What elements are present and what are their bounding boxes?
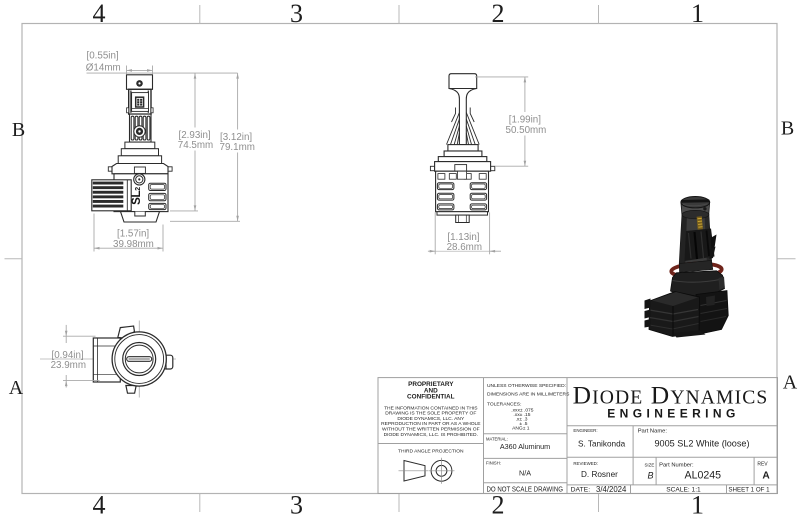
svg-text:74.5mm: 74.5mm [178,140,213,151]
svg-text:B: B [648,471,654,481]
svg-text:A: A [762,471,770,482]
svg-text:CONFIDENTIAL: CONFIDENTIAL [407,394,455,401]
svg-text:S. Tanikonda: S. Tanikonda [578,439,626,448]
svg-text:ENGINEERING: ENGINEERING [607,407,739,421]
svg-text:2: 2 [492,0,505,28]
svg-text:D. Rosner: D. Rosner [581,470,618,479]
svg-text:TOLERANCES:: TOLERANCES: [487,401,521,407]
svg-text:DIODE DYNAMICS, LLC. IS PROHIB: DIODE DYNAMICS, LLC. IS PROHIBITED. [384,432,478,438]
svg-text:ENGINEER:: ENGINEER: [573,428,597,433]
svg-text:FINISH:: FINISH: [486,461,501,466]
svg-text:1: 1 [691,491,704,518]
svg-text:79.1mm: 79.1mm [220,142,255,153]
svg-text:B: B [781,118,794,140]
svg-text:DO NOT SCALE DRAWING: DO NOT SCALE DRAWING [487,486,564,493]
svg-text:B: B [12,119,25,141]
svg-text:SCALE: 1:1: SCALE: 1:1 [666,487,701,494]
svg-text:REPRODUCTION IN PART OR AS A W: REPRODUCTION IN PART OR AS A WHOLE [381,421,481,427]
svg-text:3: 3 [290,491,303,518]
svg-text:MATERIAL:: MATERIAL: [486,436,508,441]
svg-text:A360 Aluminum: A360 Aluminum [500,442,550,451]
svg-text:Ø14mm: Ø14mm [86,63,121,74]
svg-text:REVIEWED:: REVIEWED: [573,461,598,466]
svg-text:9005 SL2 White (loose): 9005 SL2 White (loose) [655,438,750,449]
svg-text:REV: REV [757,461,768,467]
svg-text:AL0245: AL0245 [685,470,722,482]
svg-text:[0.55in]: [0.55in] [87,50,119,61]
svg-text:DRAWING IS THE SOLE PROPERTY O: DRAWING IS THE SOLE PROPERTY OF [385,411,476,417]
svg-text:1: 1 [691,0,704,28]
svg-text:SHEET 1 OF 1: SHEET 1 OF 1 [728,486,770,493]
svg-text:4: 4 [93,0,106,28]
svg-text:N/A: N/A [519,469,531,478]
svg-text:3: 3 [290,0,303,28]
svg-text:UNLESS OTHERWISE SPECIFIED:: UNLESS OTHERWISE SPECIFIED: [487,383,566,389]
svg-text:WITHOUT THE WRITTEN PERMISSION: WITHOUT THE WRITTEN PERMISSION OF [382,427,480,433]
svg-text:4: 4 [93,491,106,518]
svg-text:SIZE: SIZE [645,462,655,467]
svg-text:A: A [9,377,24,399]
svg-text:Part Number:: Part Number: [659,462,694,468]
svg-text:THIRD ANGLE PROJECTION: THIRD ANGLE PROJECTION [398,448,464,454]
svg-text:2: 2 [492,491,505,518]
svg-text:A: A [783,372,798,394]
svg-text:THE INFORMATION CONTAINED IN T: THE INFORMATION CONTAINED IN THIS [384,405,478,411]
svg-text:DATE:: DATE: [571,487,591,494]
svg-text:DIODE DYNAMICS, LLC. ANY: DIODE DYNAMICS, LLC. ANY [397,416,465,422]
svg-text:3/4/2024: 3/4/2024 [596,485,627,494]
svg-text:50.50mm: 50.50mm [506,125,547,136]
svg-text:23.9mm: 23.9mm [51,360,86,371]
svg-text:DIMENSIONS ARE IN MILLIMETERS: DIMENSIONS ARE IN MILLIMETERS [487,391,570,397]
svg-text:ANG± 1: ANG± 1 [512,426,530,432]
svg-text:Part Name:: Part Name: [638,429,668,435]
